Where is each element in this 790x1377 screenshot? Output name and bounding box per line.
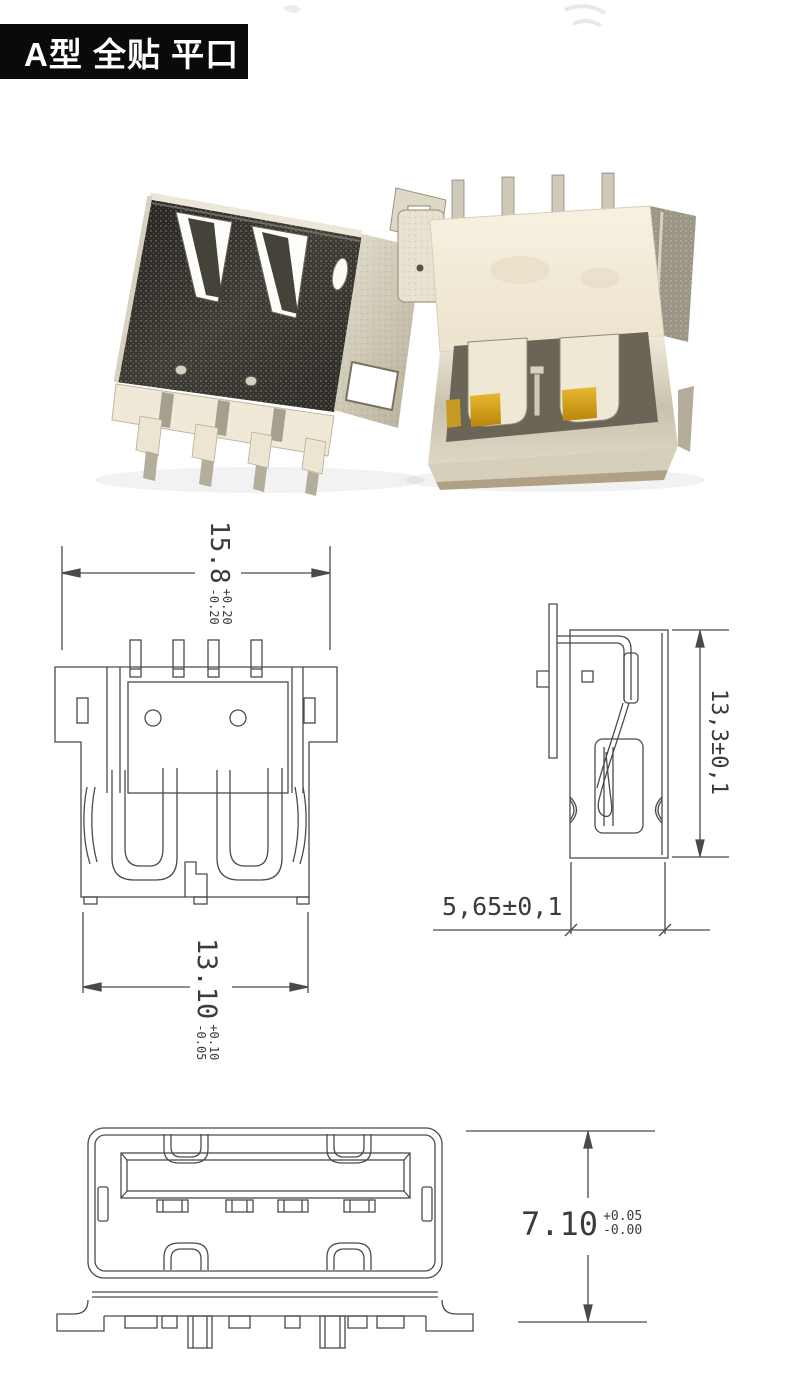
dim-value: 13.10	[191, 938, 222, 1019]
dim-label-inner-width-13-10: 13.10+0.10-0.05	[192, 936, 221, 1062]
product-photo	[0, 150, 790, 500]
dim-label-height-13-3: 13,3±0,1	[706, 687, 730, 797]
usb-connector-left	[95, 188, 446, 496]
dim-label-depth-5-65: 5,65±0,1	[440, 893, 564, 920]
technical-drawing	[0, 520, 790, 1377]
dim-value: 15.8	[204, 521, 234, 584]
dim-label-width-15-8: 15.8+0.20-0.20	[205, 519, 233, 627]
dim-tolerance: +0.10-0.05	[195, 1024, 220, 1060]
drawing-side-view	[433, 604, 729, 936]
product-page: A型 全贴 平口	[0, 0, 790, 1377]
watermark-artifact	[0, 0, 790, 60]
dim-value: 5,65±0,1	[442, 892, 562, 921]
drawing-top-view	[55, 546, 337, 993]
usb-connector-right	[398, 173, 705, 492]
dim-tolerance: +0.20-0.20	[208, 589, 233, 625]
dim-tolerance: +0.05-0.00	[603, 1210, 642, 1237]
dim-label-height-7-10: 7.10+0.05-0.00	[519, 1207, 644, 1241]
dim-value: 13,3±0,1	[706, 689, 731, 795]
dim-value: 7.10	[521, 1205, 598, 1243]
